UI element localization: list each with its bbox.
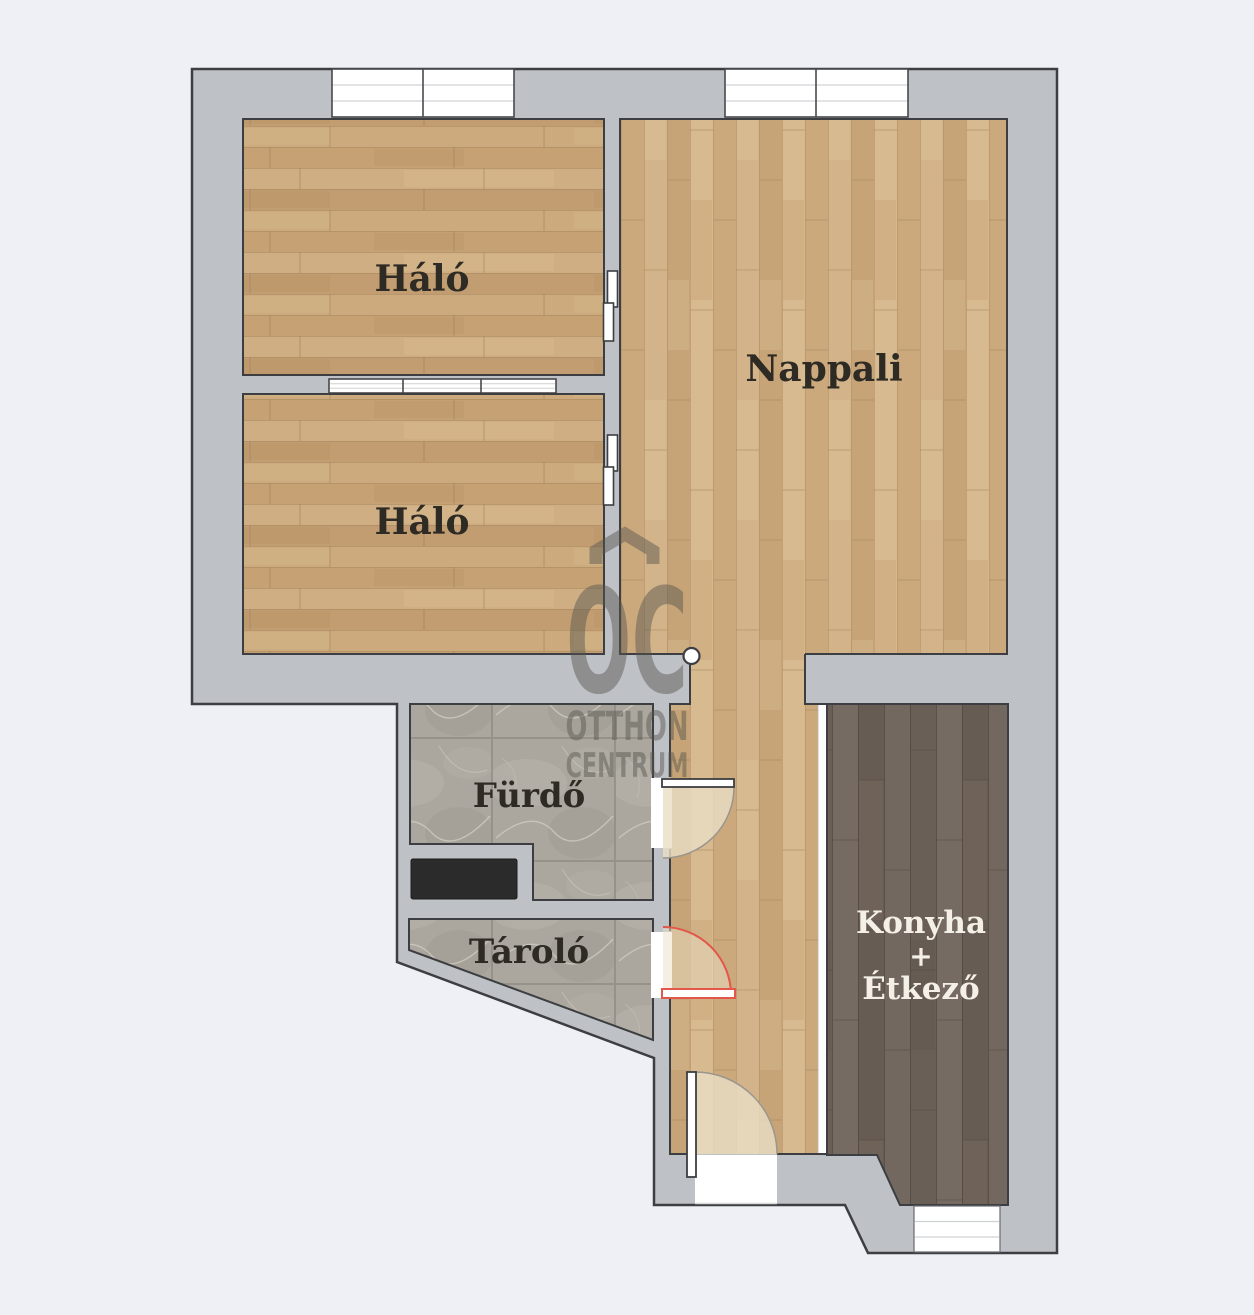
floor-plan: OC OTTHON CENTRUM Háló Háló Nappali Fürd…	[0, 0, 1254, 1315]
kitchen-window	[914, 1206, 1000, 1252]
storage-label: Tároló	[469, 932, 589, 972]
bedroom-top-floor	[243, 119, 604, 375]
bedroom-bottom-label: Háló	[374, 501, 469, 543]
bedroom-top-label: Háló	[374, 258, 469, 300]
slider-panel-icon	[608, 435, 618, 471]
window-icon	[914, 1206, 1000, 1252]
bathroom-label: Fürdő	[473, 776, 586, 816]
bedroom-divider-panels	[329, 379, 556, 393]
door-leaf	[662, 989, 735, 998]
watermark-logo: OC OTTHON CENTRUM	[566, 534, 689, 786]
wall-node-dot	[684, 648, 700, 664]
door-leaf	[687, 1072, 696, 1177]
watermark-name-line1: OTTHON	[566, 704, 689, 750]
slider-panel-icon	[604, 467, 614, 505]
kitchen-label-line2: +	[909, 940, 932, 973]
kitchen-label-line3: Étkező	[862, 969, 979, 1007]
kitchen-partition-strip	[818, 704, 827, 1155]
slider-panel-icon	[608, 271, 618, 307]
watermark-monogram: OC	[566, 558, 688, 727]
sliding-panel-icon	[329, 379, 556, 393]
entry-door-opening	[695, 1155, 777, 1204]
living-room-label: Nappali	[745, 348, 902, 390]
floor-plan-page: OC OTTHON CENTRUM Háló Háló Nappali Fürd…	[0, 0, 1254, 1315]
bathroom-fixture	[411, 859, 517, 899]
slider-panel-icon	[604, 303, 614, 341]
kitchen-label-line1: Konyha	[856, 905, 986, 941]
